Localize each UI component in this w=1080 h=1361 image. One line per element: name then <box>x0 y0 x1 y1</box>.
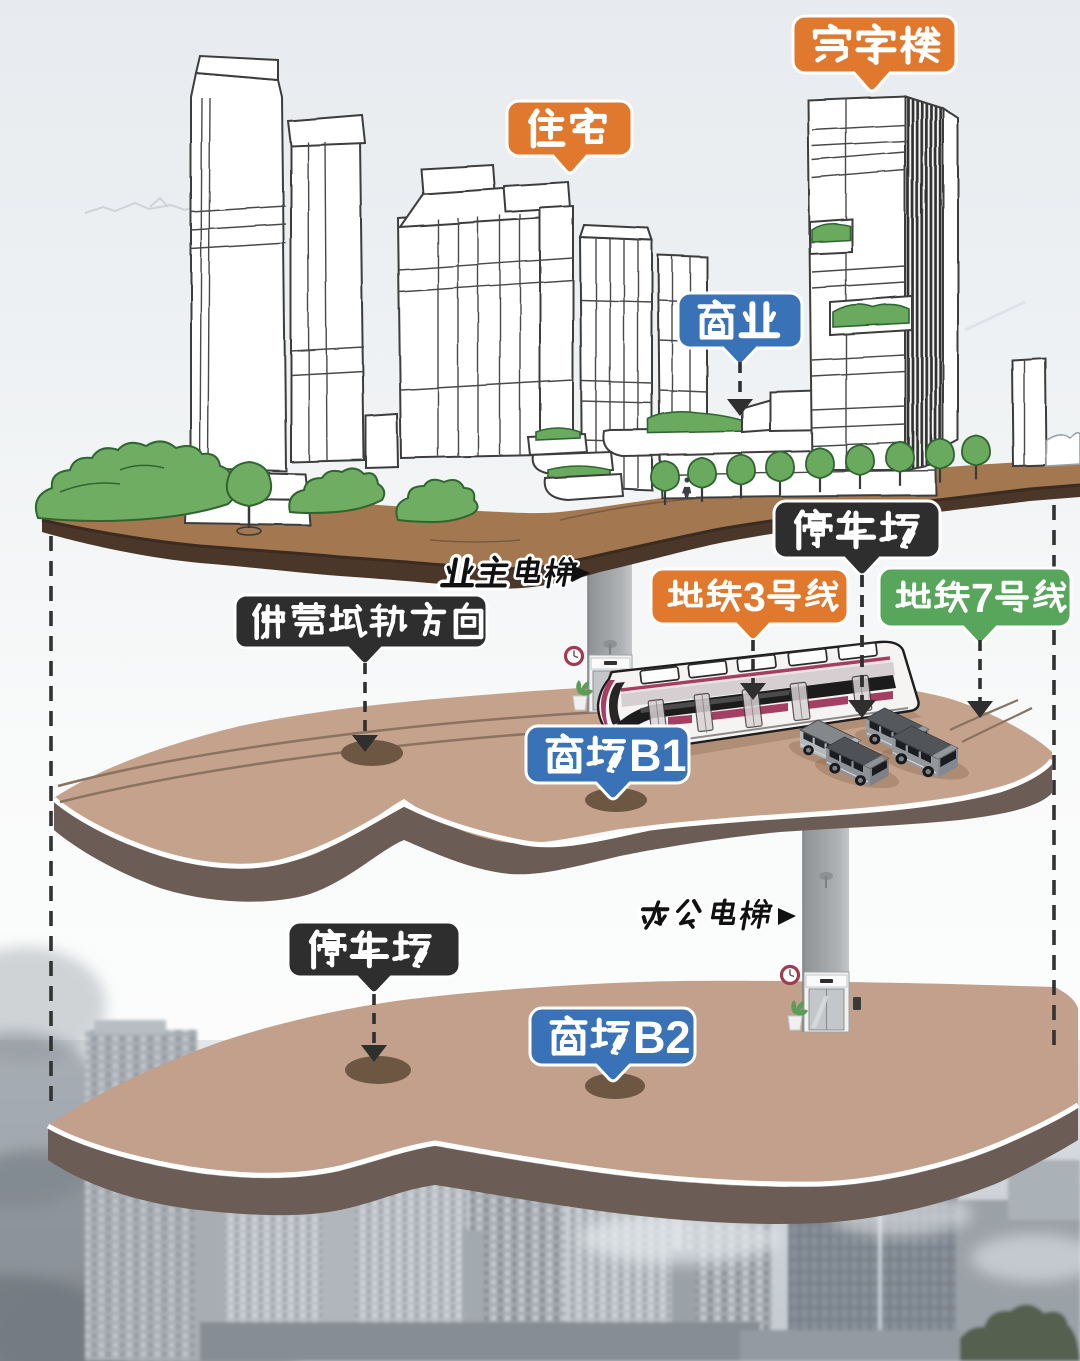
svg-text:B2: B2 <box>633 1012 691 1063</box>
svg-text:7: 7 <box>971 575 994 621</box>
svg-text:3: 3 <box>743 574 766 620</box>
svg-text:B1: B1 <box>629 730 687 781</box>
